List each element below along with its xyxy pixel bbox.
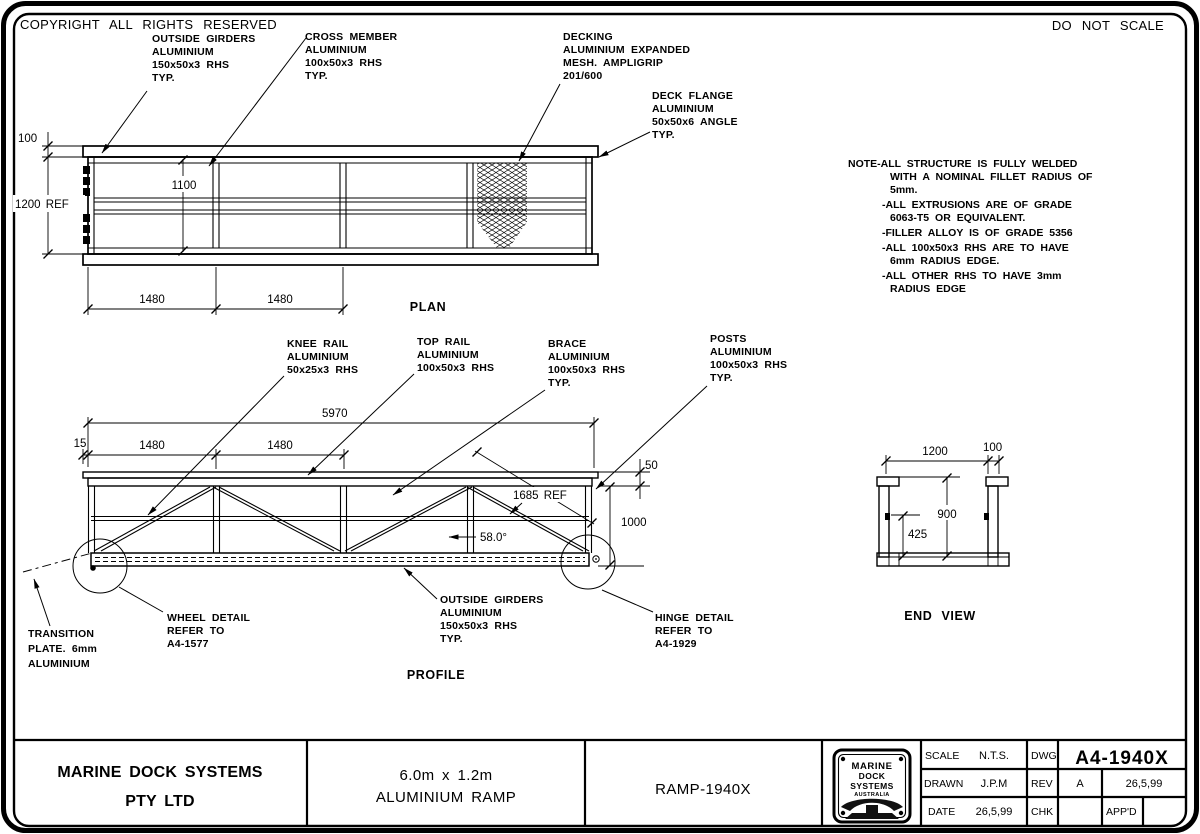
svg-text:ALUMINIUM: ALUMINIUM: [28, 658, 90, 670]
plan-dim-bay1: 1480: [139, 294, 165, 306]
date-value: 26,5,99: [976, 806, 1013, 818]
note-line: -FILLER ALLOY IS OF GRADE 5356: [882, 227, 1073, 239]
note-line: 5mm.: [890, 184, 918, 196]
appd-label: APP'D: [1106, 806, 1137, 818]
label-deck-flange: DECK FLANGE ALUMINIUM 50x50x6 ANGLE TYP.: [652, 90, 738, 141]
profile-dim-left-offset: 15: [74, 438, 87, 450]
company-name-line2: PTY LTD: [125, 793, 195, 810]
note-line: WITH A NOMINAL FILLET RADIUS OF: [890, 171, 1093, 183]
drawing-description-line2: ALUMINIUM RAMP: [376, 789, 516, 806]
title-block: MARINE DOCK SYSTEMS PTY LTD 6.0m x 1.2m …: [14, 740, 1186, 826]
svg-text:150x50x3 RHS: 150x50x3 RHS: [440, 620, 517, 632]
svg-text:ALUMINIUM: ALUMINIUM: [417, 349, 479, 361]
rev-date: 26,5,99: [1126, 778, 1163, 790]
svg-text:ALUMINIUM: ALUMINIUM: [652, 103, 714, 115]
profile-view: 5970 15 1480 1480 50 1000 1685 REF 58.0°…: [23, 333, 787, 682]
profile-dimensions: 5970 15 1480 1480 50 1000 1685 REF 58.0°: [74, 408, 658, 570]
label-top-rail: TOP RAIL ALUMINIUM 100x50x3 RHS: [417, 336, 494, 374]
profile-linework: [83, 472, 598, 566]
svg-text:150x50x3 RHS: 150x50x3 RHS: [152, 59, 229, 71]
svg-text:ALUMINIUM: ALUMINIUM: [710, 346, 772, 358]
end-view-title: END VIEW: [904, 609, 976, 623]
svg-text:ALUMINIUM: ALUMINIUM: [287, 351, 349, 363]
svg-text:OUTSIDE GIRDERS: OUTSIDE GIRDERS: [440, 594, 543, 606]
end-dim-post-height: 900: [937, 509, 956, 521]
end-view-left-lug: [885, 513, 890, 520]
mesh-decking-patch: [477, 163, 527, 248]
label-wheel-detail: WHEEL DETAIL REFER TO A4-1577: [167, 612, 251, 650]
end-dim-post-width: 100: [983, 442, 1002, 454]
plan-dim-width-ref: 1200 REF: [15, 199, 69, 211]
svg-text:PLATE. 6mm: PLATE. 6mm: [28, 643, 97, 655]
company-logo: MARINE DOCK SYSTEMS AUSTRALIA: [834, 750, 910, 822]
company-name-line1: MARINE DOCK SYSTEMS: [57, 764, 262, 781]
svg-text:OUTSIDE GIRDERS: OUTSIDE GIRDERS: [152, 33, 255, 45]
svg-text:ALUMINIUM: ALUMINIUM: [548, 351, 610, 363]
svg-text:REFER TO: REFER TO: [655, 625, 713, 637]
plan-dimensions: 100 1200 REF 1100 1480 1480: [13, 132, 348, 315]
svg-text:50x50x6 ANGLE: 50x50x6 ANGLE: [652, 116, 738, 128]
note-line: -ALL EXTRUSIONS ARE OF GRADE: [882, 199, 1072, 211]
note-line: -ALL 100x50x3 RHS ARE TO HAVE: [882, 242, 1069, 254]
drawing-sheet: COPYRIGHT ALL RIGHTS RESERVED DO NOT SCA…: [0, 0, 1200, 834]
note-line: 6063-T5 OR EQUIVALENT.: [890, 212, 1025, 224]
sheet-border: [4, 4, 1197, 831]
plan-view: 100 1200 REF 1100 1480 1480 PLAN OUTSIDE…: [13, 31, 738, 315]
profile-title: PROFILE: [407, 668, 465, 682]
drawn-label: DRAWN: [924, 778, 963, 790]
svg-text:TYP.: TYP.: [440, 633, 463, 645]
profile-leader-lines: [34, 374, 707, 626]
svg-text:TYP.: TYP.: [305, 70, 328, 82]
svg-text:TYP.: TYP.: [548, 377, 571, 389]
scale-label: SCALE: [925, 750, 959, 762]
do-not-scale-text: DO NOT SCALE: [1052, 18, 1164, 33]
svg-text:ALUMINIUM: ALUMINIUM: [152, 46, 214, 58]
rev-label: REV: [1031, 778, 1053, 790]
label-posts: POSTS ALUMINIUM 100x50x3 RHS TYP.: [710, 333, 787, 384]
note-line: NOTE-ALL STRUCTURE IS FULLY WELDED: [848, 158, 1078, 170]
svg-text:BRACE: BRACE: [548, 338, 586, 350]
svg-text:TRANSITION: TRANSITION: [28, 628, 94, 640]
plan-dim-bay2: 1480: [267, 294, 293, 306]
logo-text-systems: SYSTEMS: [850, 781, 893, 791]
label-knee-rail: KNEE RAIL ALUMINIUM 50x25x3 RHS: [287, 338, 358, 376]
logo-text-australia: AUSTRALIA: [854, 792, 889, 798]
label-outside-girders-profile: OUTSIDE GIRDERS ALUMINIUM 150x50x3 RHS T…: [440, 594, 543, 645]
label-transition-plate: TRANSITION PLATE. 6mm ALUMINIUM: [28, 628, 97, 670]
drawn-value: J.P.M: [981, 778, 1008, 790]
scale-value: N.T.S.: [979, 750, 1009, 762]
profile-dim-rail-depth: 50: [645, 460, 658, 472]
rev-value: A: [1076, 778, 1084, 790]
profile-dim-brace-length: 1685 REF: [513, 490, 567, 502]
svg-text:TYP.: TYP.: [152, 72, 175, 84]
svg-text:WHEEL DETAIL: WHEEL DETAIL: [167, 612, 251, 624]
note-line: -ALL OTHER RHS TO HAVE 3mm: [882, 270, 1062, 282]
svg-text:100x50x3 RHS: 100x50x3 RHS: [417, 362, 494, 374]
date-label: DATE: [928, 806, 955, 818]
profile-dim-bay2: 1480: [267, 440, 293, 452]
wheel-pin: [90, 565, 96, 571]
svg-text:A4-1929: A4-1929: [655, 638, 697, 650]
plan-title: PLAN: [410, 300, 446, 314]
svg-text:ALUMINIUM: ALUMINIUM: [305, 44, 367, 56]
profile-dim-bay1: 1480: [139, 440, 165, 452]
svg-text:100x50x3 RHS: 100x50x3 RHS: [710, 359, 787, 371]
svg-text:TYP.: TYP.: [710, 372, 733, 384]
svg-text:POSTS: POSTS: [710, 333, 747, 345]
copyright-text: COPYRIGHT ALL RIGHTS RESERVED: [20, 17, 277, 32]
svg-text:DECK FLANGE: DECK FLANGE: [652, 90, 733, 102]
profile-dim-overall: 5970: [322, 408, 348, 420]
profile-dim-height: 1000: [621, 517, 647, 529]
plan-dim-flange: 100: [18, 133, 37, 145]
cad-drawing: COPYRIGHT ALL RIGHTS RESERVED DO NOT SCA…: [0, 0, 1200, 834]
end-dim-width: 1200: [922, 446, 948, 458]
profile-dim-brace-angle: 58.0°: [480, 532, 507, 544]
end-dim-lug-height: 425: [908, 529, 927, 541]
label-outside-girders-plan: OUTSIDE GIRDERS ALUMINIUM 150x50x3 RHS T…: [152, 33, 255, 84]
svg-text:DECKING: DECKING: [563, 31, 613, 43]
svg-text:MESH. AMPLIGRIP: MESH. AMPLIGRIP: [563, 57, 663, 69]
transition-plate-line: [23, 553, 92, 572]
note-line: 6mm RADIUS EDGE.: [890, 255, 999, 267]
dwg-number: A4-1940X: [1075, 748, 1169, 769]
end-view-linework: [877, 477, 1009, 566]
svg-text:HINGE DETAIL: HINGE DETAIL: [655, 612, 734, 624]
svg-text:CROSS MEMBER: CROSS MEMBER: [305, 31, 398, 43]
svg-text:ALUMINIUM: ALUMINIUM: [440, 607, 502, 619]
label-hinge-detail: HINGE DETAIL REFER TO A4-1929: [655, 612, 734, 650]
end-view-right-lug: [984, 513, 989, 520]
drawing-description-line1: 6.0m x 1.2m: [400, 767, 493, 784]
plan-dim-inner-width: 1100: [172, 180, 197, 192]
product-code: RAMP-1940X: [655, 781, 751, 798]
end-view: 1200 100 900 425 END VIEW: [877, 442, 1009, 623]
label-decking: DECKING ALUMINIUM EXPANDED MESH. AMPLIGR…: [563, 31, 690, 82]
svg-text:50x25x3 RHS: 50x25x3 RHS: [287, 364, 358, 376]
logo-text-dock: DOCK: [859, 771, 886, 781]
cleat-icon: [841, 799, 903, 819]
profile-labels: KNEE RAIL ALUMINIUM 50x25x3 RHS TOP RAIL…: [28, 333, 787, 670]
end-view-dimensions: 1200 100 900 425: [882, 442, 1004, 561]
svg-text:201/600: 201/600: [563, 70, 602, 82]
label-brace: BRACE ALUMINIUM 100x50x3 RHS TYP.: [548, 338, 625, 389]
svg-text:100x50x3 RHS: 100x50x3 RHS: [548, 364, 625, 376]
chk-label: CHK: [1031, 806, 1053, 818]
hinge-pin-center: [595, 558, 597, 560]
svg-text:ALUMINIUM EXPANDED: ALUMINIUM EXPANDED: [563, 44, 690, 56]
svg-text:TOP RAIL: TOP RAIL: [417, 336, 471, 348]
svg-text:100x50x3 RHS: 100x50x3 RHS: [305, 57, 382, 69]
notes-block: NOTE-ALL STRUCTURE IS FULLY WELDED WITH …: [848, 158, 1093, 295]
svg-text:KNEE RAIL: KNEE RAIL: [287, 338, 349, 350]
svg-text:TYP.: TYP.: [652, 129, 675, 141]
svg-text:A4-1577: A4-1577: [167, 638, 209, 650]
dwg-label: DWG: [1031, 750, 1057, 762]
svg-text:REFER TO: REFER TO: [167, 625, 225, 637]
label-cross-member: CROSS MEMBER ALUMINIUM 100x50x3 RHS TYP.: [305, 31, 398, 82]
note-line: RADIUS EDGE: [890, 283, 966, 295]
